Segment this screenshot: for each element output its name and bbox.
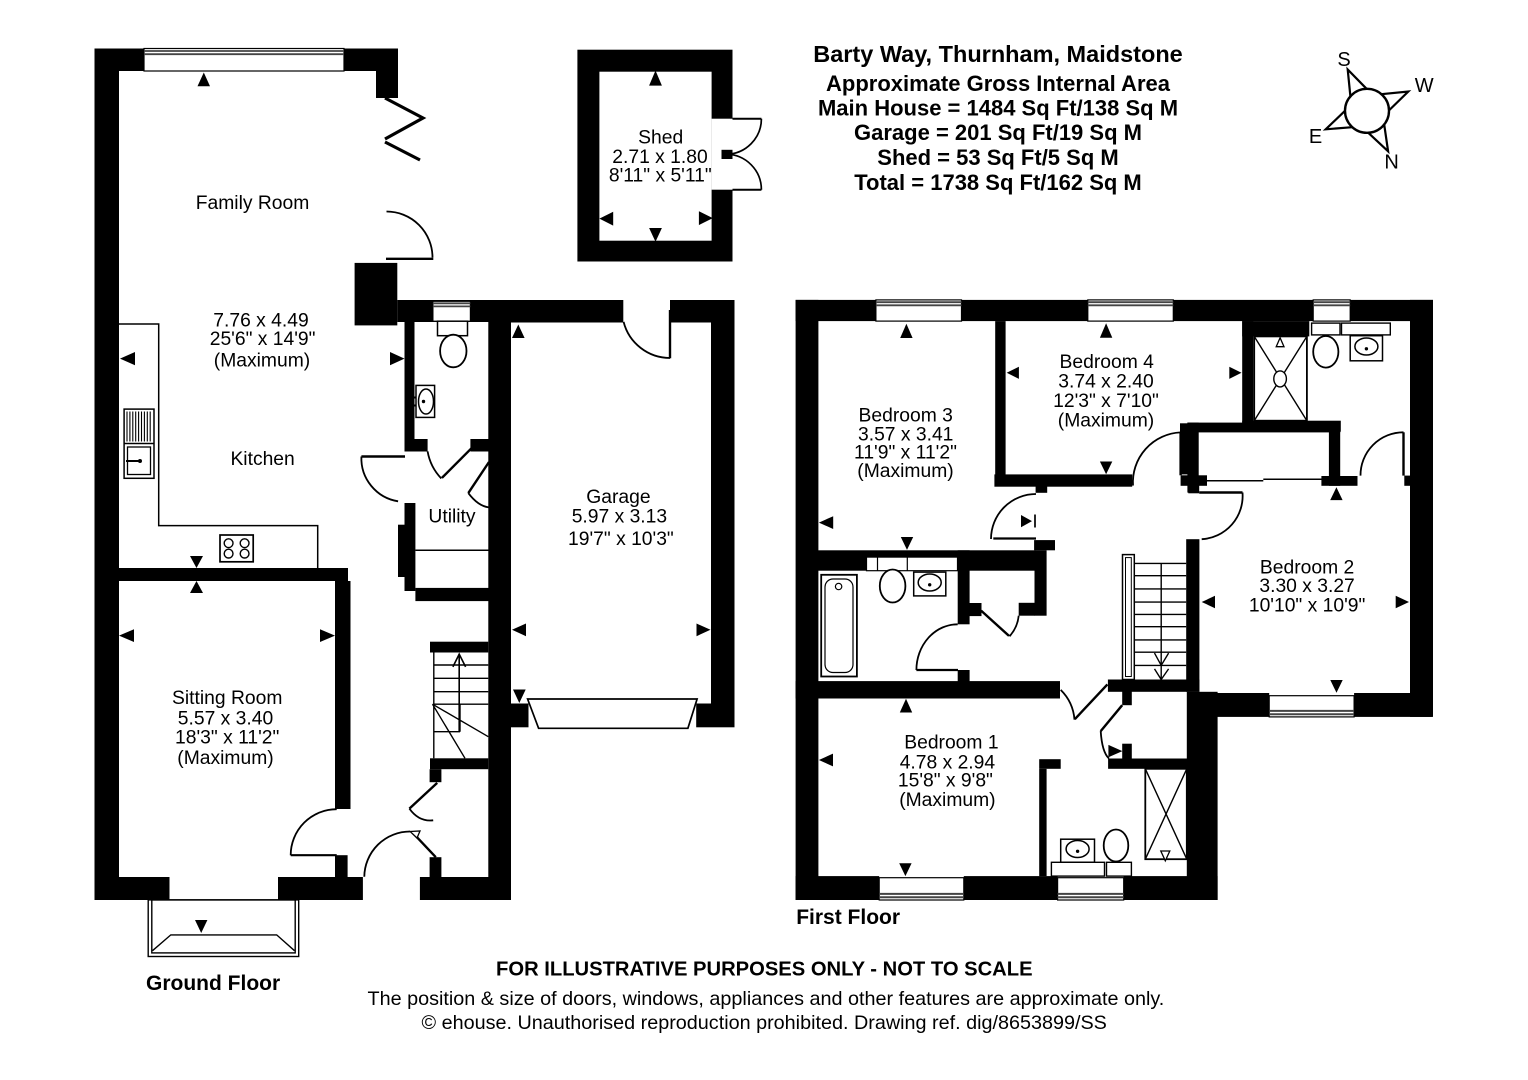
svg-text:The position & size of doors,: The position & size of doors, windows, a… [367, 988, 1164, 1010]
svg-text:(Maximum): (Maximum) [177, 748, 273, 769]
svg-text:FOR ILLUSTRATIVE PURPOSES ONLY: FOR ILLUSTRATIVE PURPOSES ONLY - NOT TO … [496, 958, 1033, 980]
svg-text:Barty Way, Thurnham, Maidstone: Barty Way, Thurnham, Maidstone [813, 41, 1183, 67]
svg-text:Utility: Utility [428, 506, 475, 527]
svg-text:Shed = 53 Sq Ft/5 Sq M: Shed = 53 Sq Ft/5 Sq M [877, 145, 1118, 170]
svg-text:(Maximum): (Maximum) [857, 461, 953, 482]
svg-text:Bedroom 3: Bedroom 3 [859, 405, 953, 426]
svg-text:(Maximum): (Maximum) [1058, 411, 1154, 432]
svg-text:Shed: Shed [638, 127, 683, 148]
svg-text:3.30 x 3.27: 3.30 x 3.27 [1259, 576, 1354, 597]
svg-text:Garage: Garage [586, 487, 650, 508]
svg-text:Family Room: Family Room [196, 193, 310, 214]
svg-text:12'3" x 7'10": 12'3" x 7'10" [1053, 391, 1159, 412]
svg-text:N: N [1384, 151, 1398, 173]
svg-text:3.74 x 2.40: 3.74 x 2.40 [1058, 372, 1153, 393]
svg-text:E: E [1309, 126, 1322, 148]
svg-text:(Maximum): (Maximum) [214, 350, 310, 371]
svg-text:Kitchen: Kitchen [230, 449, 294, 470]
svg-text:W: W [1415, 75, 1434, 97]
svg-text:© ehouse. Unauthorised reprodu: © ehouse. Unauthorised reproduction proh… [422, 1012, 1107, 1034]
svg-text:15'8" x 9'8": 15'8" x 9'8" [898, 770, 993, 791]
svg-text:25'6" x 14'9": 25'6" x 14'9" [210, 329, 316, 350]
svg-text:First Floor: First Floor [796, 906, 900, 929]
svg-text:(Maximum): (Maximum) [899, 790, 995, 811]
svg-text:Sitting Room: Sitting Room [172, 688, 282, 709]
svg-text:10'10" x 10'9": 10'10" x 10'9" [1249, 595, 1366, 616]
svg-text:Approximate Gross Internal Are: Approximate Gross Internal Area [826, 71, 1171, 96]
svg-text:Garage = 201 Sq Ft/19 Sq M: Garage = 201 Sq Ft/19 Sq M [854, 120, 1142, 145]
svg-text:18'3" x 11'2": 18'3" x 11'2" [175, 728, 279, 749]
svg-text:19'7" x 10'3": 19'7" x 10'3" [568, 529, 674, 550]
svg-text:5.97 x 3.13: 5.97 x 3.13 [572, 507, 667, 528]
svg-text:S: S [1337, 49, 1350, 71]
svg-text:Ground Floor: Ground Floor [146, 972, 280, 995]
svg-text:Bedroom 1: Bedroom 1 [904, 733, 998, 754]
svg-text:Bedroom 4: Bedroom 4 [1060, 352, 1155, 373]
svg-text:Main House = 1484 Sq Ft/138 Sq: Main House = 1484 Sq Ft/138 Sq M [818, 96, 1178, 121]
svg-text:Total = 1738 Sq Ft/162 Sq M: Total = 1738 Sq Ft/162 Sq M [854, 170, 1142, 195]
svg-text:8'11" x 5'11": 8'11" x 5'11" [609, 166, 712, 187]
